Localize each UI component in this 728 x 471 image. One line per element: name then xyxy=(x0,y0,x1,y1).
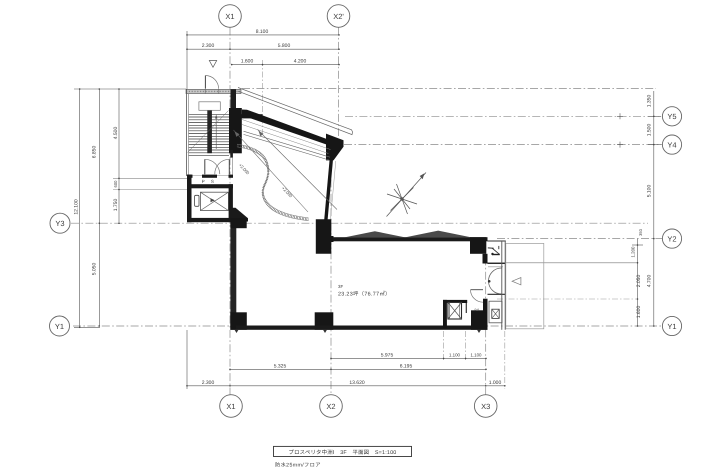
svg-text:X2: X2 xyxy=(326,402,335,411)
svg-text:Y3: Y3 xyxy=(55,219,64,228)
svg-text:5.325: 5.325 xyxy=(274,363,287,369)
svg-text:4.200: 4.200 xyxy=(294,59,307,65)
svg-text:1.500: 1.500 xyxy=(647,124,653,137)
svg-text:1.350: 1.350 xyxy=(647,95,653,108)
svg-text:13.620: 13.620 xyxy=(349,380,365,386)
svg-text:1.000: 1.000 xyxy=(489,380,502,386)
svg-text:600: 600 xyxy=(113,180,118,188)
svg-text:1.600: 1.600 xyxy=(241,59,254,65)
svg-text:1.600: 1.600 xyxy=(636,306,642,319)
svg-text:防水25mm/フロア: 防水25mm/フロア xyxy=(275,462,321,469)
svg-text:5.050: 5.050 xyxy=(92,263,98,276)
svg-text:2.300: 2.300 xyxy=(202,380,215,386)
svg-text:P.S: P.S xyxy=(475,308,480,312)
svg-text:Y1: Y1 xyxy=(667,322,676,331)
svg-text:X1: X1 xyxy=(225,12,234,21)
svg-text:1.100: 1.100 xyxy=(471,352,483,357)
svg-text:2.050: 2.050 xyxy=(636,275,642,288)
svg-text:1.200: 1.200 xyxy=(631,246,636,258)
svg-text:4.700: 4.700 xyxy=(647,275,653,288)
svg-text:1.750: 1.750 xyxy=(113,199,119,212)
svg-text:5.975: 5.975 xyxy=(381,352,394,358)
svg-text:4.500: 4.500 xyxy=(113,127,119,140)
svg-text:X1: X1 xyxy=(226,402,235,411)
svg-text:6.195: 6.195 xyxy=(400,363,413,369)
svg-text:3F: 3F xyxy=(338,284,343,289)
svg-text:23.23坪（76.77㎡）: 23.23坪（76.77㎡） xyxy=(338,290,391,297)
svg-text:Y1: Y1 xyxy=(55,322,64,331)
svg-text:Y5: Y5 xyxy=(667,112,676,121)
svg-text:5.800: 5.800 xyxy=(278,43,291,49)
svg-text:350: 350 xyxy=(638,228,643,235)
svg-text:8.100: 8.100 xyxy=(256,29,269,35)
svg-text:2.300: 2.300 xyxy=(202,43,215,49)
svg-text:P S: P S xyxy=(202,179,217,184)
svg-text:X3: X3 xyxy=(481,402,490,411)
svg-text:6.850: 6.850 xyxy=(92,146,98,159)
svg-text:5.100: 5.100 xyxy=(647,185,653,198)
svg-text:1.100: 1.100 xyxy=(449,352,461,357)
svg-text:Y4: Y4 xyxy=(667,140,676,149)
svg-text:Y2: Y2 xyxy=(667,234,676,243)
svg-text:X2': X2' xyxy=(333,12,344,21)
svg-text:12.100: 12.100 xyxy=(74,199,80,215)
svg-text:プロスペリタ中洲Ⅰ 3F 平面図 S=1:100: プロスペリタ中洲Ⅰ 3F 平面図 S=1:100 xyxy=(288,449,396,456)
